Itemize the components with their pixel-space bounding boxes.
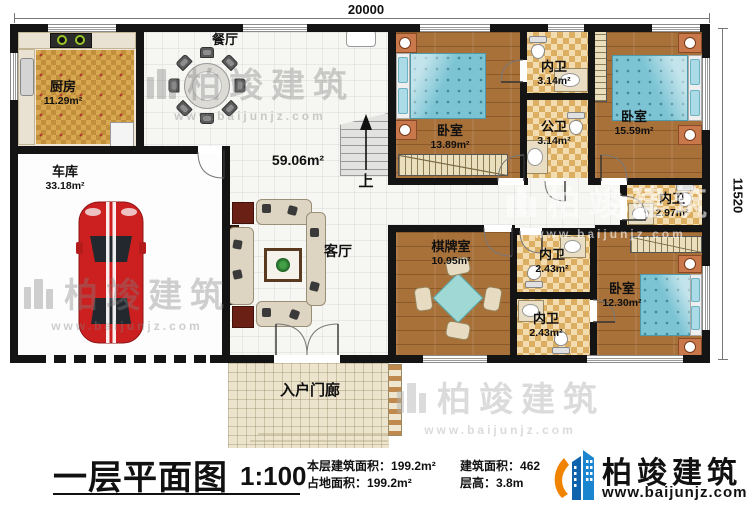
porch-steps (388, 364, 402, 436)
label-bath-inner-c: 内卫2.43m² (520, 248, 584, 275)
bed-pillow (691, 306, 700, 330)
door-gap-entrance (274, 355, 340, 363)
nightstand (393, 33, 417, 53)
floor-plan-canvas: 厨房11.29m² 餐厅 车库33.18m² 59.06m² 客厅 卧室13.8… (0, 0, 750, 508)
cushion (262, 204, 271, 213)
company-logo-url: www.baijunjz.com (602, 484, 747, 501)
door-gap-bedroom-b (601, 178, 627, 185)
watermark: 柏竣建筑 www.baijunjz.com (395, 372, 605, 437)
dimension-line-top (14, 18, 710, 19)
cushion (262, 308, 271, 317)
wall-bath-right (588, 24, 595, 185)
label-bath-public: 公卫3.14m² (524, 120, 584, 147)
door-gap-bath-public (545, 178, 565, 185)
label-bath-inner-a: 内卫3.14m² (524, 60, 584, 87)
label-kitchen: 厨房11.29m² (28, 80, 98, 107)
wall-garage-right (222, 146, 230, 363)
label-living: 客厅 (312, 243, 364, 259)
label-bedroom-a: 卧室13.89m² (415, 124, 485, 151)
dining-chair (200, 47, 214, 58)
wall-wing-left-lower (388, 228, 396, 363)
nightstand (678, 125, 702, 145)
nightstand (678, 33, 702, 53)
window-dining-top (243, 24, 307, 32)
label-dining: 餐厅 (195, 33, 255, 48)
door-gap-garage (198, 146, 222, 154)
label-bedroom-b: 卧室15.59m² (598, 110, 670, 137)
bed-pillow (398, 88, 408, 114)
window-bath-a-top (548, 24, 584, 32)
bed-pillow (691, 278, 700, 302)
door-gap-bath-b (620, 196, 627, 220)
dimension-tick (718, 359, 728, 360)
label-stairs-up: 上 (357, 173, 375, 190)
bed-bedroom-a (410, 53, 486, 119)
cushion (232, 239, 242, 249)
stats-column-1: 本层建筑面积：199.2m² 占地面积：199.2m² (307, 458, 436, 492)
dining-chair (235, 79, 246, 93)
title-underline (53, 493, 300, 495)
game-chair (413, 286, 433, 312)
label-garage: 车库33.18m² (30, 165, 100, 192)
window-bedroom-a-top (420, 24, 490, 32)
dimension-tick (718, 28, 728, 29)
label-game-room: 棋牌室10.95m² (412, 240, 490, 267)
wall-wing-left-upper (388, 24, 396, 185)
window-bedroom-c-right (702, 266, 710, 330)
label-porch: 入户门廊 (250, 382, 370, 399)
nightstand (678, 255, 702, 273)
dimension-tick (14, 13, 15, 23)
stove (50, 33, 92, 48)
side-table (232, 202, 254, 224)
burner-icon (75, 35, 85, 45)
plan-title: 一层平面图 (53, 450, 228, 499)
wall-bath-mid (520, 93, 595, 100)
sink (527, 148, 543, 166)
company-logo-icon (548, 446, 600, 504)
dimension-tick (709, 13, 710, 23)
side-table (232, 306, 254, 328)
window-bedroom-b-top (652, 24, 700, 32)
fridge (110, 122, 134, 148)
car (76, 200, 146, 345)
plant-icon (276, 258, 290, 272)
bed-pillow (690, 59, 700, 85)
label-bath-inner-b: 内卫2.97m² (640, 192, 704, 219)
window-game-bottom (423, 355, 487, 363)
window-bedroom-b-right (702, 58, 710, 130)
bed-pillow (690, 90, 700, 116)
dining-chair (200, 113, 214, 124)
cushion (232, 269, 243, 280)
door-gap-bedroom-a (498, 178, 524, 185)
cushion (310, 228, 319, 237)
dimension-top-value: 20000 (330, 2, 402, 17)
dining-chair (169, 79, 180, 93)
wall-bedroom-c-top (595, 225, 710, 232)
closet-bedroom-c (630, 236, 702, 253)
closet-bedroom-a (398, 154, 508, 176)
floor-porch (228, 363, 389, 448)
dining-cabinet (346, 30, 376, 47)
nightstand (393, 120, 417, 140)
dining-table-top (192, 71, 222, 101)
door-gap-bath-c (520, 228, 542, 235)
wall-kitchen-right (136, 24, 144, 152)
car-mirror-icon (76, 242, 83, 254)
burner-icon (57, 35, 67, 45)
label-bedroom-c: 卧室12.30m² (582, 282, 662, 309)
wall-garage-bottom-left (10, 355, 34, 363)
sofa-left (228, 227, 254, 305)
bed-pillow (398, 57, 408, 83)
nightstand (678, 338, 702, 356)
garage-door-dashed (34, 355, 210, 363)
door-gap-game-room (484, 225, 512, 232)
dimension-line-right (722, 28, 723, 360)
toilet (529, 36, 547, 60)
stats-column-2: 建筑面积：462 层高：3.8m (460, 458, 540, 492)
label-bath-inner-d: 内卫2.43m² (514, 312, 578, 339)
label-living-area: 59.06m² (258, 152, 338, 168)
wall-garage-top (10, 146, 198, 154)
dimension-right-value: 11520 (731, 170, 746, 222)
window-bedroom-c-bottom (587, 355, 683, 363)
window-kitchen-top (48, 24, 116, 32)
plan-scale: 1:100 (240, 461, 307, 492)
car-mirror-icon (139, 242, 146, 254)
wall-bath-left (520, 24, 527, 185)
window-kitchen-left (10, 53, 18, 100)
